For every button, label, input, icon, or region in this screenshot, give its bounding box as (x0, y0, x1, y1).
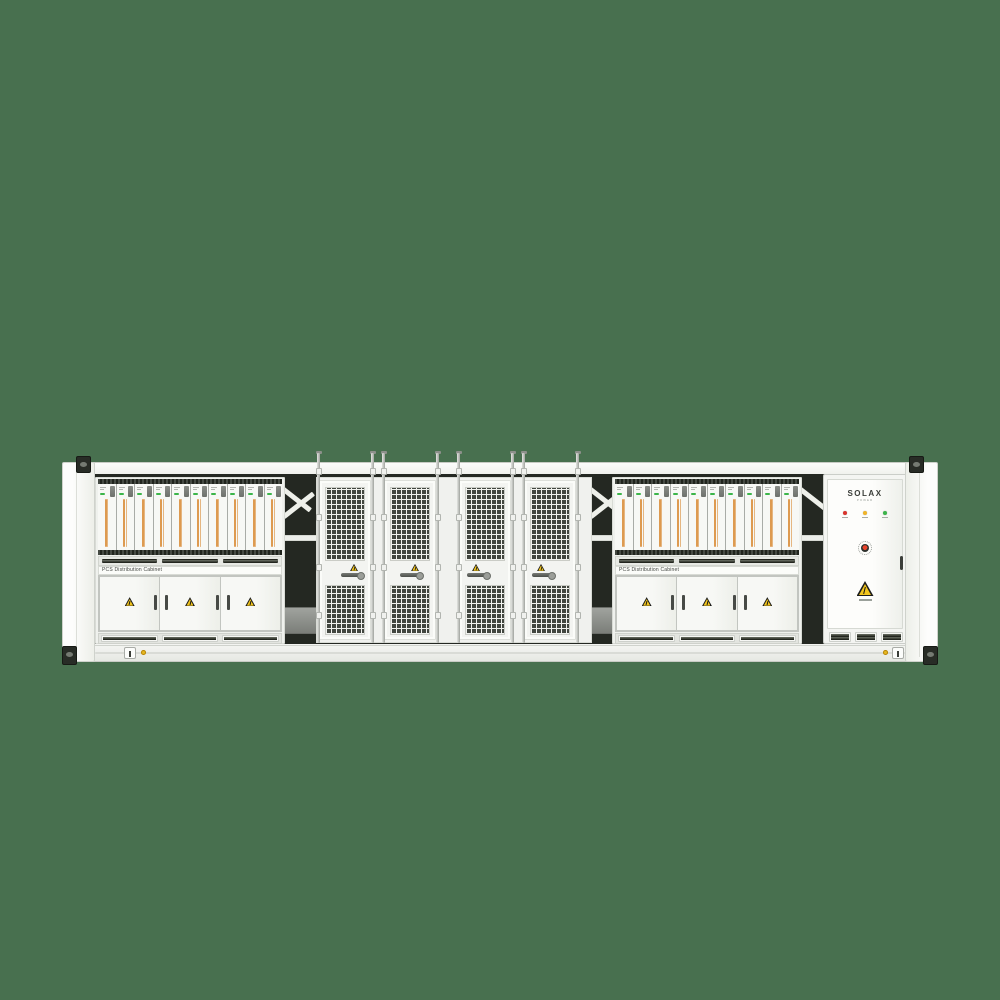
module-stripe-icon (107, 499, 108, 547)
warning-triangle-icon (245, 597, 255, 606)
mesh-door-handle-band (388, 563, 432, 583)
module-stripe-icon (197, 499, 199, 547)
battery-module (634, 484, 652, 550)
service-switch-left (124, 647, 136, 659)
module-stripe-icon (160, 499, 162, 547)
module-stripe-icon (717, 499, 718, 547)
high-voltage-warning-label (828, 581, 902, 601)
module-label-lines (636, 487, 642, 488)
module-stripe-icon (772, 499, 773, 547)
door-handle (682, 595, 685, 610)
vent-slats (102, 559, 157, 563)
module-vent-grille (793, 486, 798, 497)
emergency-stop-ring (858, 541, 872, 555)
module-label-lines (248, 487, 254, 488)
cross-beam (801, 535, 824, 541)
bay-bottom-vents (615, 633, 799, 644)
module-stripe-icon (255, 499, 256, 547)
lock-rod-bracket (521, 468, 527, 475)
lock-rod-bracket (381, 514, 387, 521)
module-stripe-icon (142, 499, 144, 547)
emergency-stop-button (861, 544, 869, 552)
module-stripe-icon (179, 499, 181, 547)
warning-triangle-icon (642, 597, 652, 606)
module-label-lines (710, 489, 714, 490)
mesh-grille (390, 585, 430, 635)
module-label-lines (765, 487, 771, 488)
battery-module (228, 484, 246, 550)
module-stripe-icon (234, 499, 236, 547)
brand-logo-sub: POWER (828, 498, 902, 502)
distribution-cabinet-doors (98, 575, 282, 632)
module-stripe-icon (714, 499, 716, 547)
module-vent-grille (775, 486, 780, 497)
vent-slats (162, 559, 217, 563)
module-status-led (747, 493, 752, 495)
module-label-lines (673, 489, 677, 490)
cabinet-door (677, 577, 736, 630)
warning-triangle-icon (472, 564, 480, 571)
module-label-lines (230, 489, 234, 490)
vent-group (739, 635, 796, 642)
lock-rod-bracket (456, 612, 462, 619)
vent-group (101, 635, 158, 642)
mesh-door-handle (341, 573, 363, 577)
control-cabinet-door: SOLAX POWER (827, 479, 903, 629)
vent-slats (681, 637, 734, 640)
battery-module (191, 484, 209, 550)
module-vent-grille (645, 486, 650, 497)
module-label-lines (174, 489, 178, 490)
vent-slats (620, 637, 673, 640)
mesh-door-handle-band (463, 563, 507, 583)
vent-group (855, 632, 877, 642)
warning-triangle-icon (350, 564, 358, 571)
corner-casting-top-right (909, 456, 924, 473)
mesh-door (384, 480, 436, 640)
cabinet-door (100, 577, 159, 630)
module-stripe-icon (754, 499, 755, 547)
lock-rod-bracket (575, 514, 581, 521)
structural-gap-left (285, 477, 316, 644)
mesh-grille (530, 487, 570, 561)
structural-gap-right (592, 477, 612, 644)
module-status-led (248, 493, 253, 495)
warning-triangle-icon (411, 564, 419, 571)
module-stripe-icon (181, 499, 182, 547)
module-vent-grille (184, 486, 189, 497)
led-dot (883, 511, 887, 515)
module-vent-grille (258, 486, 263, 497)
mesh-door-handle (467, 573, 489, 577)
lock-rod-bracket (316, 514, 322, 521)
status-led-green (882, 511, 888, 518)
battery-module (135, 484, 153, 550)
lock-rod-bracket (435, 514, 441, 521)
module-status-led (193, 493, 198, 495)
rack-perforated-flange (98, 550, 282, 555)
lock-rod-bracket (521, 514, 527, 521)
mesh-door (459, 480, 511, 640)
vent-slats (679, 559, 734, 563)
module-status-led (654, 493, 659, 495)
lock-rod-bracket (456, 468, 462, 475)
lock-rod-bracket (381, 612, 387, 619)
corner-casting-bottom-right (923, 646, 938, 665)
module-vent-grille (701, 486, 706, 497)
warning-triangle-icon (762, 597, 772, 606)
module-stripe-icon (788, 499, 790, 547)
module-stripe-icon (661, 499, 662, 547)
corner-casting-top-left (76, 456, 91, 473)
lock-rod-bracket (370, 612, 376, 619)
lock-rod-bracket (575, 564, 581, 571)
module-stripe-icon (791, 499, 792, 547)
module-stripe-icon (237, 499, 238, 547)
vent-slats (857, 634, 875, 640)
lock-rod-bracket (575, 468, 581, 475)
module-status-led (636, 493, 641, 495)
module-status-led (174, 493, 179, 495)
vent-slats (740, 559, 795, 563)
cross-beam (284, 535, 317, 541)
module-label-lines (100, 489, 104, 490)
module-status-led (765, 493, 770, 495)
vent-group (618, 635, 675, 642)
pcs-module-rack (615, 479, 799, 555)
module-label-lines (267, 487, 273, 488)
led-label (842, 517, 848, 519)
module-label-lines (728, 487, 734, 488)
service-switch-right (892, 647, 904, 659)
module-stripe-icon (274, 499, 275, 547)
module-label-lines (747, 487, 753, 488)
module-vent-grille (738, 486, 743, 497)
module-stripe-icon (751, 499, 753, 547)
status-led-row (828, 511, 902, 518)
module-stripe-icon (253, 499, 255, 547)
module-vent-grille (682, 486, 687, 497)
battery-module (782, 484, 800, 550)
indicator-dot-right (883, 650, 888, 655)
warning-triangle-icon (125, 597, 135, 606)
module-label-lines (193, 487, 199, 488)
warning-triangle-icon (857, 581, 874, 596)
module-label-lines (747, 489, 751, 490)
module-status-led (211, 493, 216, 495)
module-vent-grille (202, 486, 207, 497)
module-status-led (710, 493, 715, 495)
battery-module (671, 484, 689, 550)
module-label-lines (137, 487, 143, 488)
bay-label: PCS Distribution Cabinet (98, 566, 282, 575)
vent-group (162, 635, 219, 642)
lock-rod-bracket (510, 612, 516, 619)
vent-slats (164, 637, 217, 640)
module-label-lines (765, 489, 769, 490)
corner-casting-bottom-left (62, 646, 77, 665)
module-row (615, 484, 799, 550)
module-label-lines (174, 487, 180, 488)
module-label-lines (691, 489, 695, 490)
vent-slats (224, 637, 277, 640)
module-label-lines (654, 487, 660, 488)
battery-module (154, 484, 172, 550)
door-handle (154, 595, 157, 610)
module-stripe-icon (271, 499, 273, 547)
vent-group (829, 632, 851, 642)
module-vent-grille (756, 486, 761, 497)
door-handle (165, 595, 168, 610)
structural-gap-cabinet (802, 477, 823, 644)
lock-rod-bracket (510, 564, 516, 571)
warning-label-text (859, 599, 872, 601)
cabinet-door-handle (900, 556, 903, 570)
module-stripe-icon (733, 499, 735, 547)
module-label-lines (137, 489, 141, 490)
module-status-led (100, 493, 105, 495)
mesh-door (319, 480, 371, 640)
led-label (862, 517, 868, 519)
status-led-red (842, 511, 848, 518)
module-stripe-icon (200, 499, 201, 547)
mesh-door-handle (532, 573, 554, 577)
module-stripe-icon (622, 499, 624, 547)
battery-module (652, 484, 670, 550)
bottom-rail-groove (95, 652, 905, 654)
battery-module (726, 484, 744, 550)
cabinet-door (160, 577, 219, 630)
battery-module (172, 484, 190, 550)
module-vent-grille (110, 486, 115, 497)
door-handle (671, 595, 674, 610)
module-label-lines (119, 487, 125, 488)
lock-rod-bracket (381, 468, 387, 475)
lock-rod-bracket (575, 612, 581, 619)
vent-slats (619, 559, 674, 563)
module-stripe-icon (163, 499, 164, 547)
module-vent-grille (239, 486, 244, 497)
module-stripe-icon (735, 499, 736, 547)
status-led-amber (862, 511, 868, 518)
cabinet-door (617, 577, 676, 630)
mesh-grille (530, 585, 570, 635)
lock-rod-bracket (435, 468, 441, 475)
module-label-lines (784, 487, 790, 488)
led-dot (863, 511, 867, 515)
module-stripe-icon (680, 499, 681, 547)
lock-rod-bracket (381, 564, 387, 571)
lock-rod-bracket (316, 468, 322, 475)
battery-module (763, 484, 781, 550)
lock-rod-bracket (456, 514, 462, 521)
module-label-lines (248, 489, 252, 490)
module-label-lines (193, 489, 197, 490)
rack-perforated-flange (615, 550, 799, 555)
lock-rod-bracket (370, 468, 376, 475)
mesh-grille (325, 585, 365, 635)
module-label-lines (673, 487, 679, 488)
vent-slats (223, 559, 278, 563)
bay-label: PCS Distribution Cabinet (615, 566, 799, 575)
vent-bar (98, 556, 282, 566)
module-stripe-icon (696, 499, 698, 547)
vent-bar (615, 556, 799, 566)
module-stripe-icon (105, 499, 107, 547)
battery-bay-left: PCS Distribution Cabinet (95, 477, 285, 644)
battery-module (745, 484, 763, 550)
module-label-lines (211, 487, 217, 488)
battery-module (209, 484, 227, 550)
module-stripe-icon (698, 499, 699, 547)
battery-module (98, 484, 116, 550)
module-vent-grille (128, 486, 133, 497)
module-label-lines (156, 487, 162, 488)
lock-rod-bracket (435, 564, 441, 571)
vent-group (222, 635, 279, 642)
module-status-led (673, 493, 678, 495)
corner-post-right (905, 462, 938, 662)
led-label (882, 517, 888, 519)
module-stripe-icon (126, 499, 127, 547)
module-label-lines (691, 487, 697, 488)
distribution-cabinet-doors (615, 575, 799, 632)
module-status-led (156, 493, 161, 495)
module-status-led (691, 493, 696, 495)
module-stripe-icon (640, 499, 642, 547)
cross-beam (591, 535, 613, 541)
lock-rod-bracket (435, 612, 441, 619)
brand-logo: SOLAX (828, 489, 902, 498)
mesh-grille (390, 487, 430, 561)
pcs-module-rack (98, 479, 282, 555)
module-label-lines (617, 489, 621, 490)
module-vent-grille (221, 486, 226, 497)
module-label-lines (267, 489, 271, 490)
module-stripe-icon (643, 499, 644, 547)
lock-rod-bracket (316, 612, 322, 619)
lock-rod-bracket (456, 564, 462, 571)
lock-rod-bracket (316, 564, 322, 571)
mesh-door-section (316, 477, 592, 643)
module-status-led (617, 493, 622, 495)
module-vent-grille (627, 486, 632, 497)
indicator-dot-left (141, 650, 146, 655)
corner-post-left (62, 462, 95, 662)
control-cabinet: SOLAX POWER (823, 474, 907, 644)
scene-background: PCS Distribution Cabinet PCS Distributio… (0, 0, 1000, 1000)
battery-module (265, 484, 283, 550)
module-stripe-icon (677, 499, 679, 547)
door-handle (744, 595, 747, 610)
battery-module (689, 484, 707, 550)
module-stripe-icon (216, 499, 218, 547)
vent-slats (883, 634, 901, 640)
mesh-grille (465, 585, 505, 635)
battery-module (615, 484, 633, 550)
mesh-door-handle (400, 573, 422, 577)
module-label-lines (156, 489, 160, 490)
module-vent-grille (165, 486, 170, 497)
fork-pocket (282, 607, 319, 634)
module-status-led (267, 493, 272, 495)
lock-rod-bracket (521, 564, 527, 571)
module-status-led (119, 493, 124, 495)
module-label-lines (710, 487, 716, 488)
cabinet-vent-row (828, 631, 904, 643)
module-row (98, 484, 282, 550)
module-stripe-icon (770, 499, 772, 547)
lock-rod-bracket (521, 612, 527, 619)
door-handle (733, 595, 736, 610)
module-status-led (230, 493, 235, 495)
warning-triangle-icon (702, 597, 712, 606)
module-status-led (728, 493, 733, 495)
module-vent-grille (664, 486, 669, 497)
warning-triangle-icon (185, 597, 195, 606)
lock-rod-bracket (370, 564, 376, 571)
vent-group (881, 632, 903, 642)
mesh-door-handle-band (528, 563, 572, 583)
module-stripe-icon (123, 499, 125, 547)
module-vent-grille (719, 486, 724, 497)
module-label-lines (617, 487, 623, 488)
module-vent-grille (276, 486, 281, 497)
lock-rod-bracket (510, 468, 516, 475)
vent-group (679, 635, 736, 642)
door-handle (216, 595, 219, 610)
battery-module (117, 484, 135, 550)
vent-slats (741, 637, 794, 640)
module-stripe-icon (624, 499, 625, 547)
vent-slats (103, 637, 156, 640)
lock-rod-bracket (510, 514, 516, 521)
mesh-door (524, 480, 576, 640)
mesh-door-handle-band (323, 563, 367, 583)
module-stripe-icon (218, 499, 219, 547)
module-label-lines (636, 489, 640, 490)
battery-module (246, 484, 264, 550)
mesh-grille (325, 487, 365, 561)
module-label-lines (784, 489, 788, 490)
module-vent-grille (147, 486, 152, 497)
bay-bottom-vents (98, 633, 282, 644)
battery-module (708, 484, 726, 550)
module-label-lines (211, 489, 215, 490)
module-label-lines (119, 489, 123, 490)
module-status-led (137, 493, 142, 495)
module-label-lines (728, 489, 732, 490)
module-stripe-icon (144, 499, 145, 547)
module-label-lines (100, 487, 106, 488)
module-label-lines (654, 489, 658, 490)
door-handle (227, 595, 230, 610)
led-dot (843, 511, 847, 515)
module-status-led (784, 493, 789, 495)
module-label-lines (230, 487, 236, 488)
lock-rod-bracket (370, 514, 376, 521)
vent-slats (831, 634, 849, 640)
warning-triangle-icon (537, 564, 545, 571)
module-stripe-icon (659, 499, 661, 547)
mesh-grille (465, 487, 505, 561)
battery-bay-right: PCS Distribution Cabinet (612, 477, 802, 644)
